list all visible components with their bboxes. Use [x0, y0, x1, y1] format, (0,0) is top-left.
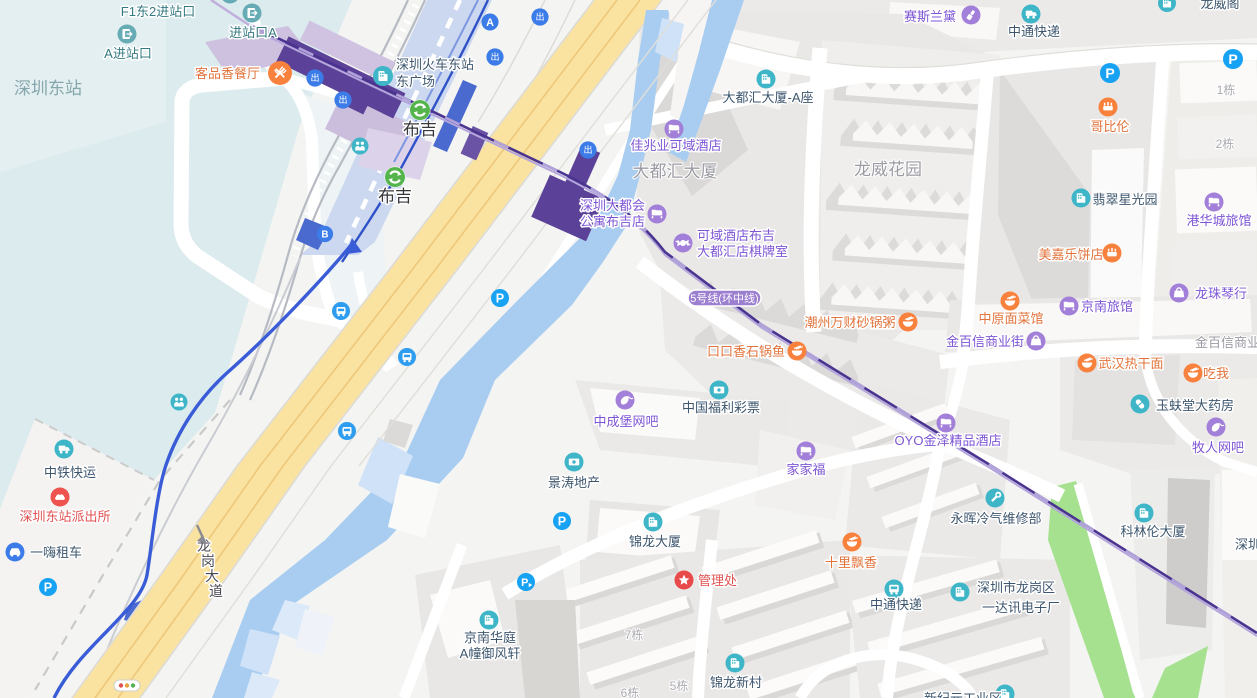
svg-text:客品香餐厅: 客品香餐厅 [195, 66, 260, 81]
svg-text:公寓布吉店: 公寓布吉店 [580, 214, 645, 229]
svg-text:锦龙大厦: 锦龙大厦 [629, 534, 681, 549]
svg-text:5栋: 5栋 [670, 678, 689, 693]
svg-text:龙威阁: 龙威阁 [1200, 0, 1239, 11]
svg-text:新纪元工业区: 新纪元工业区 [924, 691, 1002, 698]
svg-text:A进站口: A进站口 [104, 46, 152, 61]
svg-text:道: 道 [209, 583, 223, 599]
svg-text:赛斯兰黛: 赛斯兰黛 [904, 9, 956, 24]
svg-text:口口香石锅鱼: 口口香石锅鱼 [707, 344, 785, 359]
svg-text:管理处: 管理处 [698, 573, 737, 588]
svg-text:深圳大都会: 深圳大都会 [580, 198, 645, 213]
svg-text:中原面菜馆: 中原面菜馆 [978, 311, 1043, 326]
svg-text:潮州万财砂锅粥: 潮州万财砂锅粥 [804, 315, 895, 330]
svg-text:中通快递: 中通快递 [870, 597, 922, 612]
svg-text:中国福利彩票: 中国福利彩票 [682, 400, 760, 415]
svg-text:家家福: 家家福 [786, 462, 825, 477]
svg-text:2栋: 2栋 [1216, 136, 1235, 151]
svg-text:F1东2进站口: F1东2进站口 [121, 4, 195, 19]
svg-text:中成堡网吧: 中成堡网吧 [593, 414, 658, 429]
svg-text:锦龙新村: 锦龙新村 [710, 675, 762, 690]
svg-text:1栋: 1栋 [1217, 82, 1236, 97]
svg-text:牧人网吧: 牧人网吧 [1192, 440, 1244, 455]
svg-text:金百信商业街: 金百信商业街 [946, 334, 1024, 349]
svg-text:5号线(环中线): 5号线(环中线) [690, 291, 758, 305]
svg-text:岗: 岗 [201, 553, 215, 569]
svg-text:佳兆业可域酒店: 佳兆业可域酒店 [630, 138, 721, 153]
svg-text:龙珠琴行: 龙珠琴行 [1195, 286, 1247, 301]
svg-text:一嗨租车: 一嗨租车 [30, 545, 82, 560]
svg-text:吃我: 吃我 [1203, 366, 1229, 381]
svg-text:7栋: 7栋 [625, 627, 644, 642]
svg-text:大: 大 [205, 568, 219, 584]
svg-text:深圳火车东站: 深圳火车东站 [396, 57, 474, 72]
svg-text:大都汇大厦: 大都汇大厦 [633, 162, 718, 181]
svg-text:永晖冷气维修部: 永晖冷气维修部 [950, 511, 1041, 526]
svg-text:京南旅馆: 京南旅馆 [1081, 299, 1133, 314]
svg-text:进站口A: 进站口A [229, 25, 277, 40]
svg-text:景涛地产: 景涛地产 [548, 475, 600, 490]
svg-text:一达讯电子厂: 一达讯电子厂 [982, 600, 1060, 615]
svg-text:翡翠星光园: 翡翠星光园 [1092, 192, 1157, 207]
svg-text:美嘉乐饼店: 美嘉乐饼店 [1038, 247, 1103, 262]
svg-text:金百信商业广: 金百信商业广 [1195, 335, 1257, 350]
svg-text:京南华庭: 京南华庭 [464, 630, 516, 645]
svg-text:深圳东站派出所: 深圳东站派出所 [19, 509, 110, 524]
svg-text:十里飘香: 十里飘香 [825, 555, 877, 570]
svg-text:布吉: 布吉 [403, 120, 437, 139]
svg-text:武汉热干面: 武汉热干面 [1098, 356, 1163, 371]
svg-text:6栋: 6栋 [621, 685, 640, 698]
svg-text:深圳东站: 深圳东站 [14, 79, 82, 98]
svg-text:大都汇大厦-A座: 大都汇大厦-A座 [722, 90, 813, 105]
svg-text:深圳: 深圳 [1235, 537, 1257, 552]
svg-text:玉蚨堂大药房: 玉蚨堂大药房 [1156, 398, 1234, 413]
svg-text:中通快递: 中通快递 [1008, 24, 1060, 39]
svg-text:OYO金泽精品酒店: OYO金泽精品酒店 [895, 433, 1002, 448]
svg-text:A幢御风轩: A幢御风轩 [460, 646, 521, 661]
svg-text:大都汇店棋牌室: 大都汇店棋牌室 [697, 244, 788, 259]
svg-text:港华城旅馆: 港华城旅馆 [1186, 213, 1251, 228]
svg-text:哥比伦: 哥比伦 [1090, 119, 1129, 134]
svg-text:中铁快运: 中铁快运 [44, 465, 96, 480]
svg-text:可域酒店布吉: 可域酒店布吉 [697, 228, 775, 243]
svg-text:科林伦大厦: 科林伦大厦 [1120, 524, 1185, 539]
svg-text:龙威花园: 龙威花园 [854, 160, 922, 179]
svg-text:东广场: 东广场 [396, 74, 435, 89]
svg-text:深圳市龙岗区: 深圳市龙岗区 [977, 580, 1055, 595]
svg-text:布吉: 布吉 [378, 187, 412, 206]
